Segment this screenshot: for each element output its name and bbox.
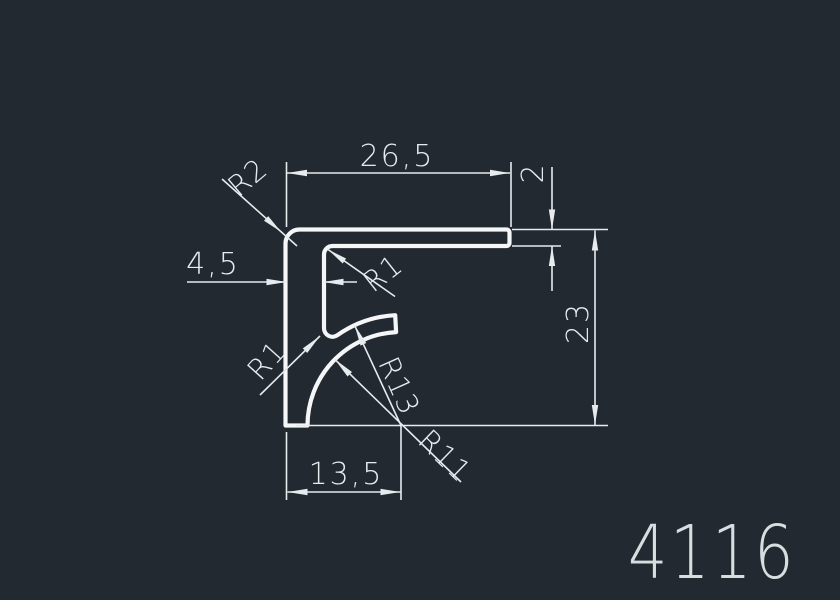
radius-label-r2: R2 <box>221 151 274 203</box>
arrowhead-left <box>288 489 308 495</box>
arrowhead-down <box>592 405 598 425</box>
radius-label-r13: R13 <box>371 352 426 421</box>
arrowhead-up <box>549 246 555 266</box>
radius-callout-outer-corner: R2 <box>221 151 297 246</box>
dim-label-arm-thickness: 2 <box>516 162 551 183</box>
cad-viewport: 26,5 2 23 4,5 13,5 R2 R1 <box>0 0 840 600</box>
arrowhead-right <box>381 489 401 495</box>
profile-drawing: 26,5 2 23 4,5 13,5 R2 R1 <box>0 0 840 600</box>
dimension-bottom-width: 13,5 <box>288 457 401 495</box>
dim-label-top-width: 26,5 <box>360 139 435 174</box>
dimension-arm-thickness: 2 <box>516 162 555 291</box>
dim-label-total-height: 23 <box>561 302 596 344</box>
arrowhead-up <box>592 231 598 251</box>
dimension-total-height: 23 <box>561 231 598 426</box>
dimension-top-width: 26,5 <box>287 139 510 176</box>
radius-label-r11: R11 <box>412 423 479 489</box>
radius-callout-inner-corner: R1 <box>328 247 409 299</box>
arrowhead <box>303 336 320 353</box>
arrowhead-left <box>287 170 307 176</box>
dim-label-leg-width: 4,5 <box>186 247 240 282</box>
arrowhead-right <box>490 170 510 176</box>
arrowhead <box>264 216 281 232</box>
radius-callout-fin-root: R1 <box>240 334 320 395</box>
arrowhead-left <box>324 279 344 285</box>
drawing-number: 4116 <box>628 511 796 597</box>
dim-label-bottom-width: 13,5 <box>309 457 384 492</box>
radius-label-r1-upper: R1 <box>356 247 409 299</box>
arrowhead <box>335 359 352 376</box>
arrowhead <box>328 250 346 264</box>
arrowhead-down <box>549 210 555 230</box>
